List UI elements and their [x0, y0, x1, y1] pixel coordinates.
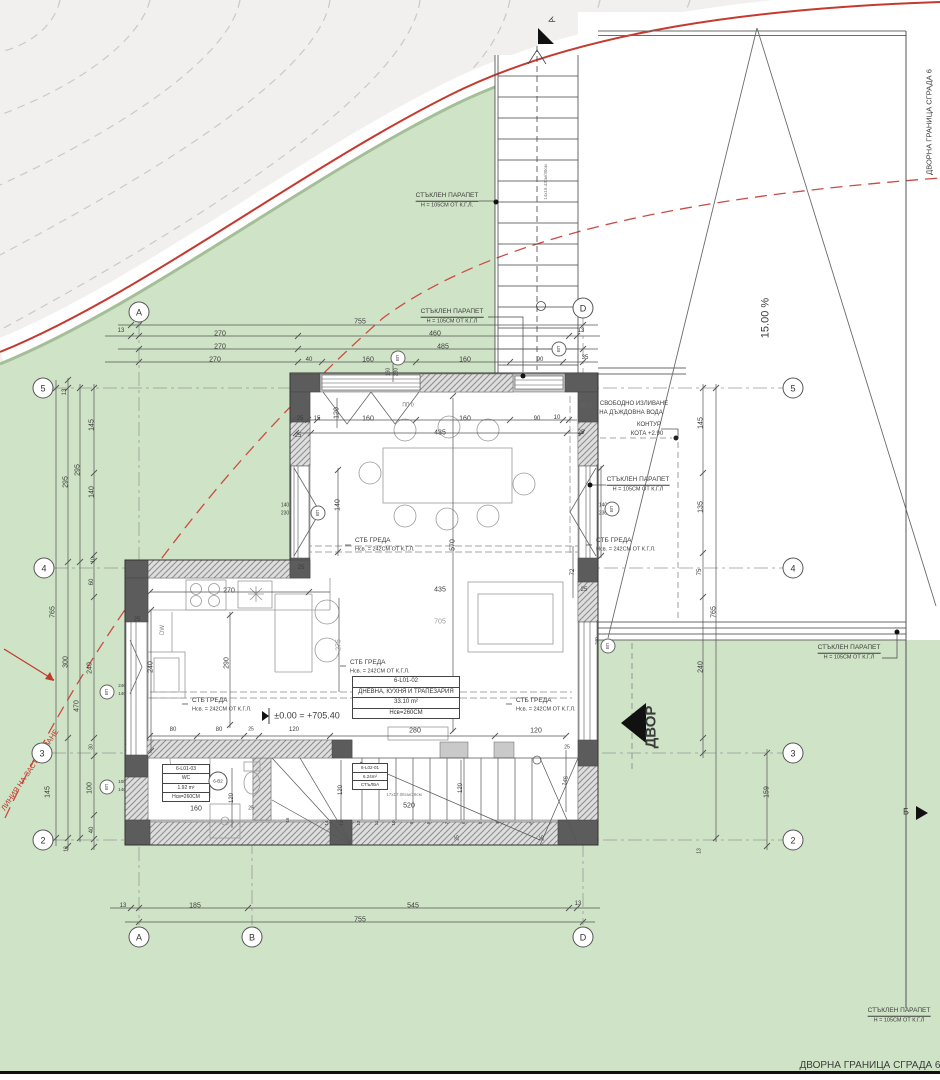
parapet-dot	[494, 200, 499, 205]
room-height: Нсв=260СМ	[353, 708, 459, 719]
room-name: ДНЕВНА, КУХНЯ И ТРАПЕЗАРИЯ	[353, 687, 459, 698]
site-plan: 7551327046013270485270401601609035160230…	[0, 0, 940, 1080]
room-height: Нсв=260СМ	[163, 792, 209, 801]
room-area: 33.10 m²	[353, 697, 459, 708]
room-info-living: 6-L01-02 ДНЕВНА, КУХНЯ И ТРАПЕЗАРИЯ 33.1…	[352, 676, 460, 719]
room-info-stairs: 6-L02-01 6.24m² СТЪЛБА	[352, 763, 388, 790]
ramp-area	[578, 12, 940, 640]
room-name: СТЪЛБА	[353, 780, 387, 789]
room-id: 6-L02-01	[353, 764, 387, 772]
parapet-dot	[895, 630, 900, 635]
bottom-margin	[0, 1074, 940, 1080]
room-area: 6.24m²	[353, 772, 387, 781]
room-area: 1.92 m²	[163, 783, 209, 792]
room-name: WC	[163, 773, 209, 782]
room-info-wc: 6-L01-03 WC 1.92 m² Нсв=260СМ	[162, 764, 210, 802]
fixture-marker-b2: 6-В2	[209, 772, 228, 791]
section-flag	[538, 28, 554, 44]
room-id: 6-L01-02	[353, 677, 459, 687]
plan-linework	[0, 0, 940, 1080]
parapet-dot	[521, 374, 526, 379]
parapet-dot	[588, 483, 593, 488]
contour-dot	[674, 436, 679, 441]
bottom-boundary-line	[0, 1071, 940, 1074]
room-id: 6-L01-03	[163, 765, 209, 773]
